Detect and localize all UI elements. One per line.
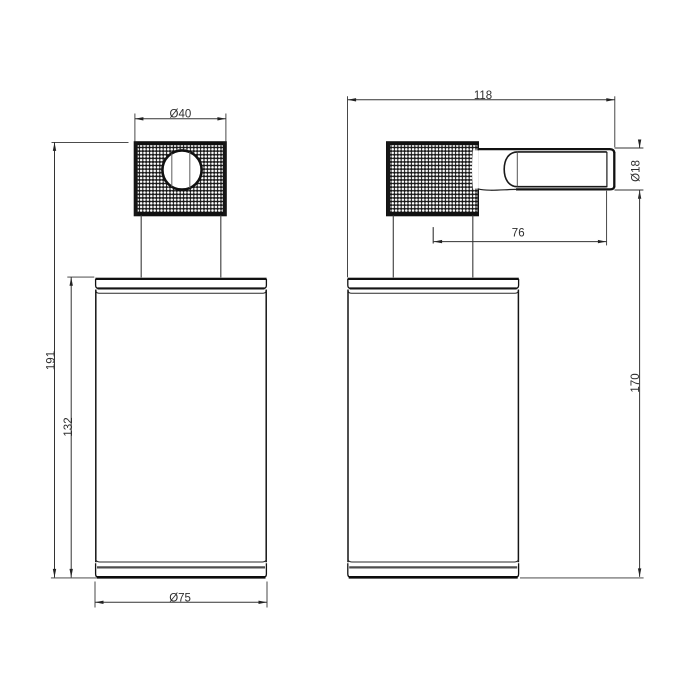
svg-text:Ø75: Ø75 [169,593,191,605]
svg-text:76: 76 [512,228,525,240]
svg-text:191: 191 [46,351,58,370]
svg-text:118: 118 [474,90,492,102]
svg-text:Ø18: Ø18 [630,160,642,182]
svg-text:Ø40: Ø40 [170,109,192,121]
svg-text:170: 170 [630,373,642,392]
svg-text:132: 132 [63,417,75,436]
